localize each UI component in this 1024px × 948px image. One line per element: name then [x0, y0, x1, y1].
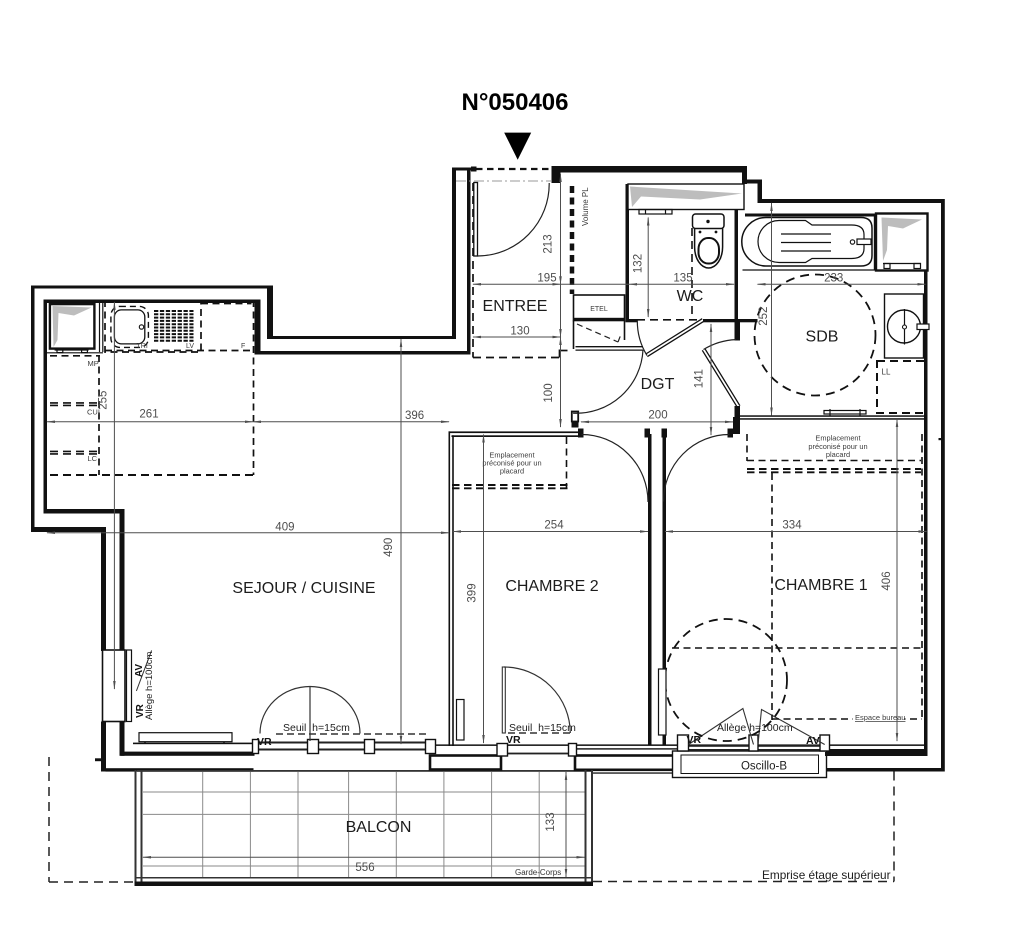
svg-text:490: 490 — [383, 538, 395, 557]
svg-text:VR: VR — [506, 734, 521, 746]
svg-text:Seuil h=15cm: Seuil h=15cm — [509, 722, 576, 734]
svg-text:LV: LV — [186, 343, 194, 350]
svg-text:TRI: TRI — [137, 343, 148, 350]
svg-text:ENTREE: ENTREE — [483, 298, 548, 315]
svg-text:135: 135 — [673, 273, 692, 285]
svg-text:SEJOUR / CUISINE: SEJOUR / CUISINE — [232, 580, 375, 597]
svg-text:261: 261 — [139, 409, 158, 421]
svg-text:406: 406 — [881, 571, 893, 590]
svg-text:334: 334 — [782, 520, 802, 532]
svg-text:ETEL: ETEL — [590, 306, 608, 313]
svg-text:556: 556 — [355, 862, 374, 874]
svg-text:100: 100 — [543, 383, 555, 402]
svg-text:195: 195 — [537, 273, 556, 285]
svg-text:placard: placard — [500, 467, 524, 476]
svg-text:CHAMBRE 2: CHAMBRE 2 — [505, 578, 598, 595]
svg-text:MP: MP — [88, 359, 99, 368]
svg-text:409: 409 — [275, 522, 294, 534]
svg-text:LC: LC — [88, 454, 98, 463]
svg-text:141: 141 — [694, 369, 706, 388]
svg-text:Seuil h=15cm: Seuil h=15cm — [283, 722, 350, 734]
svg-text:SDB: SDB — [806, 329, 839, 346]
svg-text:200: 200 — [648, 409, 667, 421]
svg-text:Volume PL: Volume PL — [581, 187, 590, 226]
svg-text:252: 252 — [758, 307, 770, 326]
svg-text:VR: VR — [257, 736, 272, 748]
svg-text:130: 130 — [510, 326, 529, 338]
svg-text:N°050406: N°050406 — [461, 89, 568, 116]
svg-text:CHAMBRE 1: CHAMBRE 1 — [774, 577, 867, 594]
svg-text:placard: placard — [826, 450, 850, 459]
svg-text:132: 132 — [633, 254, 645, 273]
svg-text:BALCON: BALCON — [346, 819, 412, 836]
svg-text:LL: LL — [882, 368, 891, 377]
svg-text:399: 399 — [467, 583, 479, 602]
svg-text:Espace bureau: Espace bureau — [855, 713, 905, 722]
svg-text:233: 233 — [824, 273, 843, 285]
svg-text:213: 213 — [543, 234, 555, 253]
svg-text:F: F — [241, 343, 245, 350]
svg-text:WC: WC — [677, 288, 704, 305]
svg-text:396: 396 — [405, 410, 424, 422]
svg-text:Allège h=100cm: Allège h=100cm — [144, 652, 155, 720]
svg-text:Allège h=100cm: Allège h=100cm — [717, 722, 793, 734]
svg-text:254: 254 — [544, 520, 564, 532]
svg-text:133: 133 — [545, 812, 557, 831]
svg-text:Emprise étage supérieur: Emprise étage supérieur — [762, 868, 891, 882]
svg-text:AV: AV — [806, 735, 820, 747]
svg-text:Garde-Corps: Garde-Corps — [515, 868, 561, 877]
svg-text:255: 255 — [98, 391, 110, 410]
svg-text:DGT: DGT — [641, 376, 675, 393]
svg-text:Oscillo-B: Oscillo-B — [741, 761, 787, 773]
